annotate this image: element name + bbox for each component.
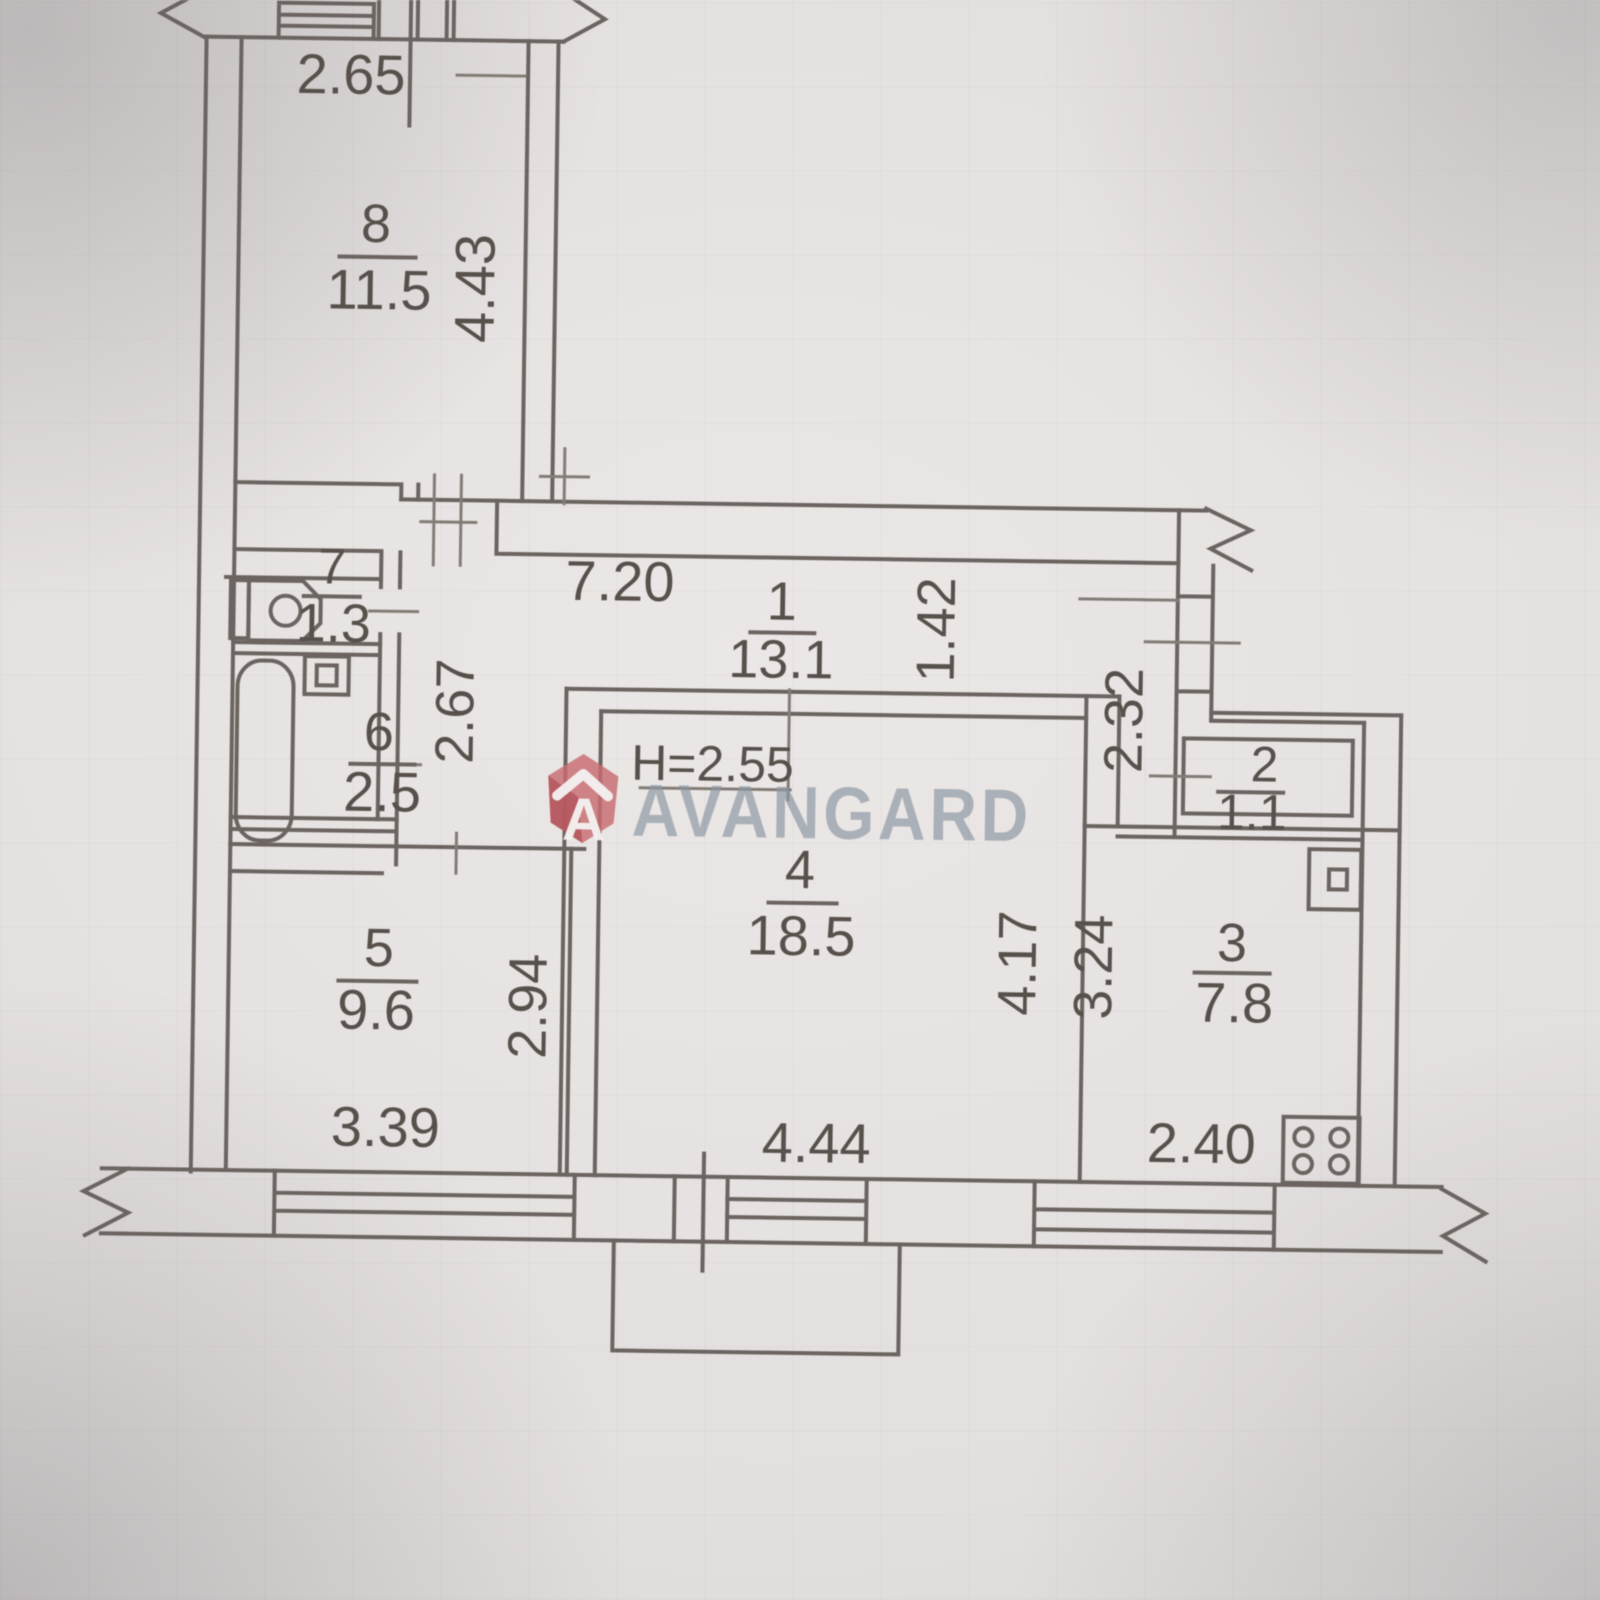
break-mark-top-right	[564, 0, 606, 42]
dim-kitchen-width: 2.40	[1146, 1111, 1256, 1176]
dim-room5-depth: 2.94	[497, 953, 558, 1059]
wall-top	[207, 37, 564, 42]
entry-door-ticks	[420, 475, 476, 566]
wall-room5-right-inner	[567, 849, 572, 1175]
dim-room5-width: 3.39	[330, 1094, 440, 1159]
balcony-outline	[612, 1240, 900, 1354]
avangard-logo-icon: A	[547, 753, 618, 853]
bath-sink-icon	[304, 656, 349, 695]
dim-room8-depth: 4.43	[442, 233, 507, 343]
room-5-number: 5	[363, 918, 394, 978]
wall-room8-right-outer	[552, 42, 558, 502]
stove-icon	[1283, 1117, 1360, 1184]
room-6-area: 2.5	[343, 760, 422, 824]
room-1-area: 13.1	[728, 629, 834, 690]
room-8-area: 11.5	[326, 257, 432, 321]
dim-kitchen-depth: 3.24	[1063, 914, 1124, 1020]
wall-left-inner	[226, 37, 242, 1170]
wall-room8-bottom	[235, 482, 418, 500]
wall-hall-right	[1175, 510, 1215, 835]
tick-room5-door	[456, 833, 457, 873]
room-3-area: 7.8	[1195, 971, 1274, 1035]
wall-wc-top	[226, 549, 381, 579]
watermark-text: AVANGARD	[631, 769, 1032, 858]
wall-room5-top	[230, 844, 584, 849]
room-5-area: 9.6	[337, 978, 416, 1042]
dim-passage-left: 2.67	[424, 658, 485, 764]
dim-hall-depth: 1.42	[906, 577, 967, 683]
wall-room8-right-inner	[522, 41, 528, 501]
room-4-area: 18.5	[746, 903, 856, 968]
room-8-number: 8	[361, 194, 392, 254]
tick-hall-left	[540, 448, 589, 504]
break-mark-top-left	[161, 0, 205, 37]
window-room5	[274, 1171, 575, 1240]
break-mark-bottom-right	[1441, 1189, 1487, 1262]
floor-plan-svg: 8 11.5 1 13.1 7 1.3 6 2.5 5 9.6 4 18.5 2…	[0, 0, 1600, 1600]
window-room4	[727, 1177, 867, 1244]
wall-left-outer	[191, 37, 207, 1172]
room-7-area: 1.3	[295, 593, 371, 654]
break-mark-hall-wall-right	[1205, 509, 1252, 571]
room-2-area: 1.1	[1217, 784, 1287, 841]
tick-wc-door	[370, 611, 418, 612]
dim-room8-width: 2.65	[296, 42, 406, 107]
logo-letter-a: A	[562, 786, 606, 854]
break-mark-bottom-left	[83, 1168, 129, 1236]
window-room8	[279, 3, 374, 39]
room-3-number: 3	[1217, 913, 1248, 973]
bathtub-icon	[235, 660, 294, 841]
kitchen-sink-icon	[1309, 849, 1362, 910]
dim-room4-width: 4.44	[761, 1111, 871, 1176]
room-6-number: 6	[363, 702, 394, 762]
room-1-number: 1	[766, 572, 797, 632]
room-labels: 8 11.5 1 13.1 7 1.3 6 2.5 5 9.6 4 18.5 2…	[290, 193, 1295, 1054]
wall-hall-top-outer	[401, 499, 1206, 510]
room-7-number: 7	[318, 538, 347, 594]
dim-passage-right: 2.32	[1093, 668, 1154, 774]
balcony-door-opening	[673, 1153, 728, 1271]
dim-room4-depth: 4.17	[987, 910, 1048, 1016]
tick-dim-265	[457, 75, 525, 76]
scanned-floor-plan-photo: 8 11.5 1 13.1 7 1.3 6 2.5 5 9.6 4 18.5 2…	[0, 0, 1600, 1600]
wall-closet-top	[1211, 713, 1401, 724]
wall-room4-top	[566, 689, 1119, 719]
wall-right-exterior	[1358, 715, 1402, 1186]
window-kitchen	[1034, 1181, 1275, 1249]
dim-hall-length: 7.20	[565, 549, 675, 614]
